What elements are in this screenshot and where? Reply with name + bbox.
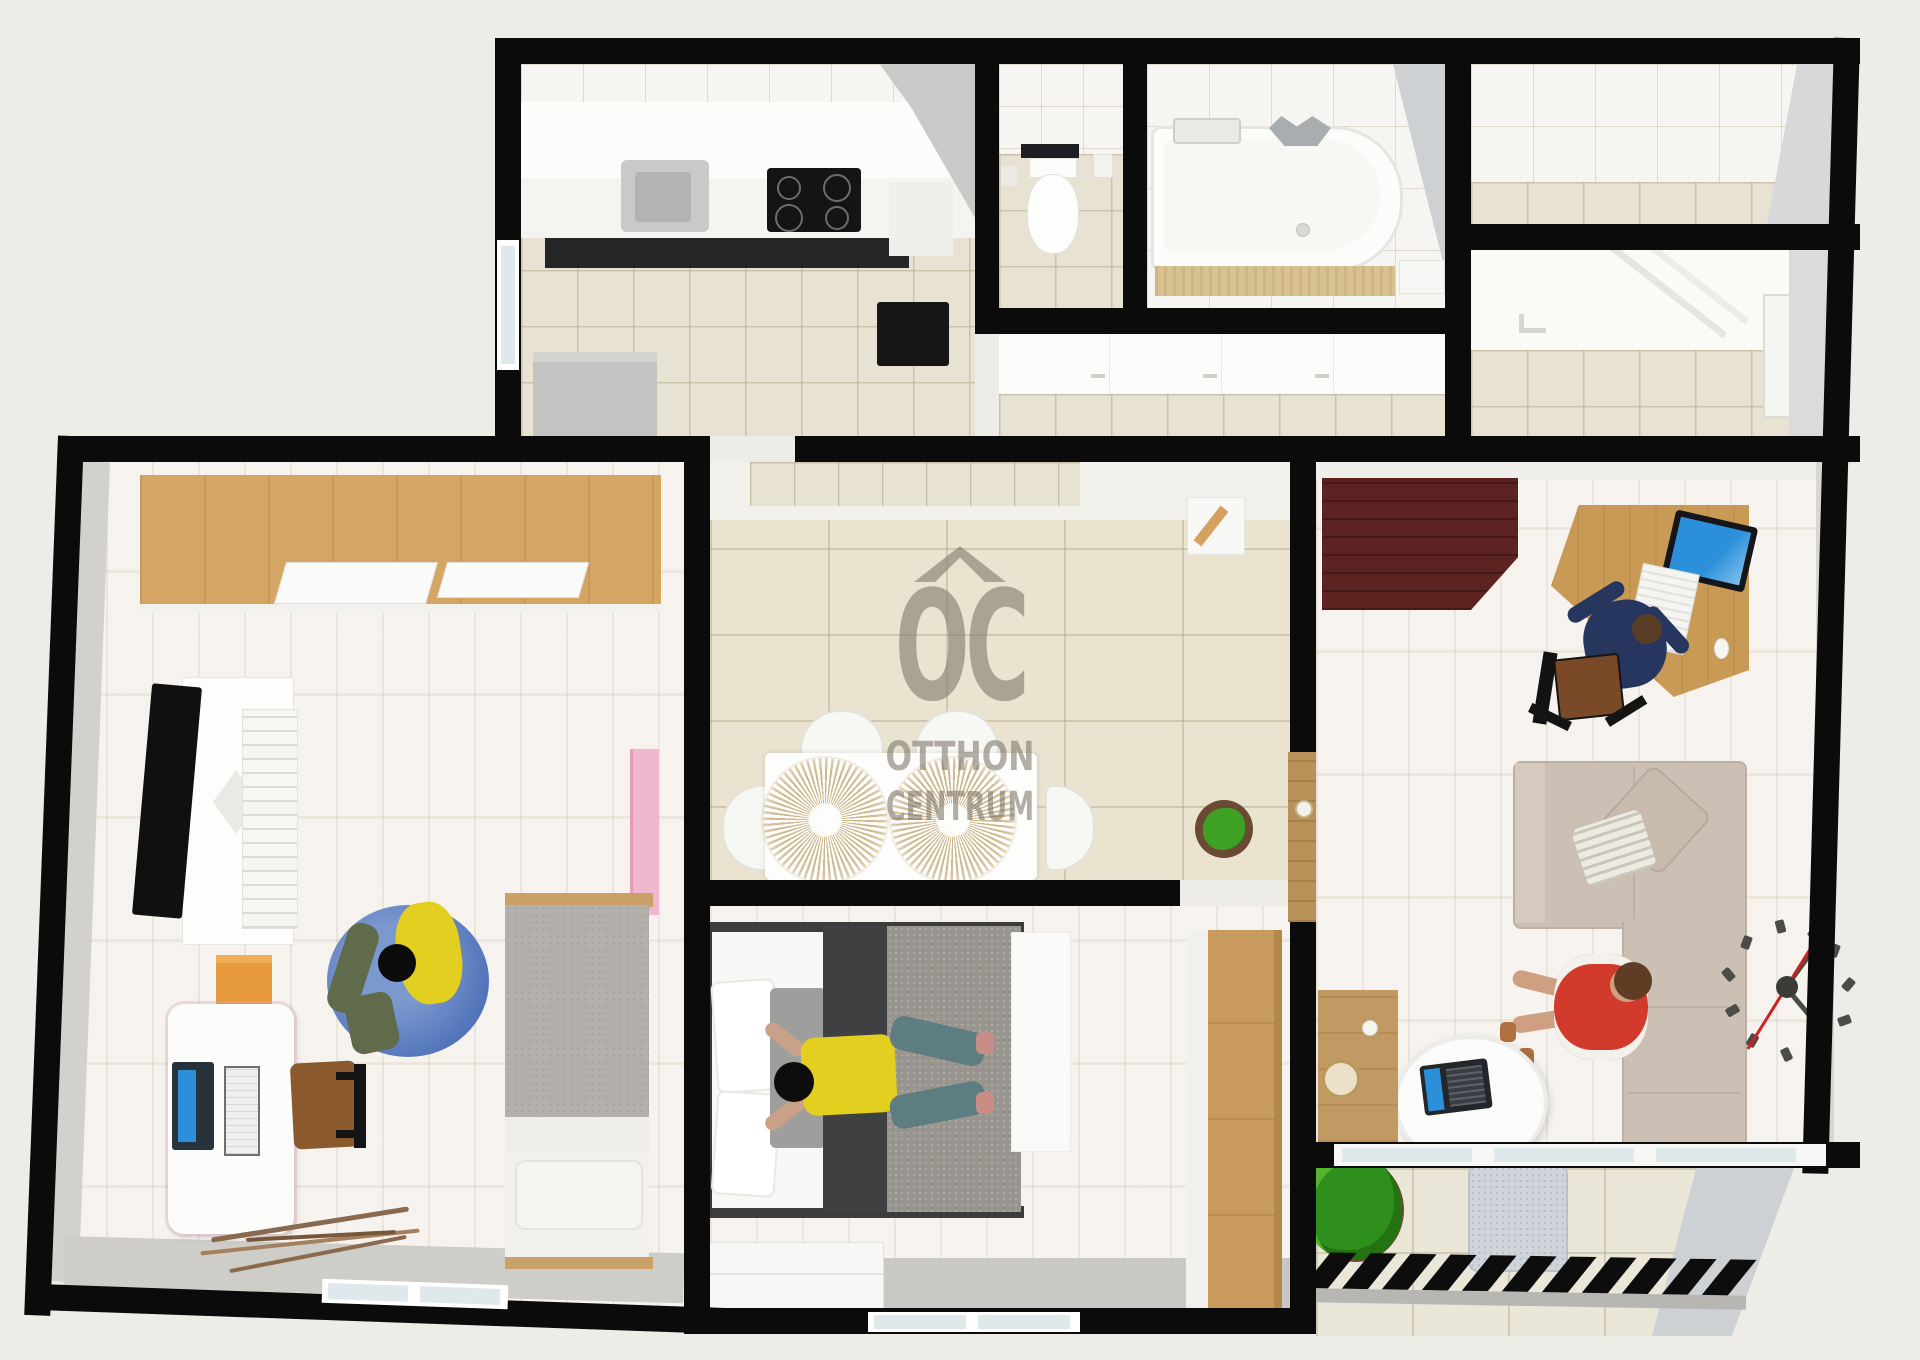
desk-chair-frame xyxy=(336,1072,362,1080)
bathtub-basin xyxy=(1164,139,1380,251)
wall-console xyxy=(1187,497,1245,555)
dark-cabinet xyxy=(1322,478,1518,610)
decor-plate xyxy=(1322,1060,1360,1098)
potted-plant xyxy=(1195,800,1253,858)
wall-top xyxy=(495,38,1860,64)
console-decor xyxy=(1194,506,1229,547)
floor-plan: OC OTTHON CENTRUM xyxy=(0,0,1920,1360)
wardrobe-seam xyxy=(1109,334,1110,394)
sofa-armrest xyxy=(1515,763,1545,923)
kitchen-window-glass xyxy=(501,246,515,364)
person-lying-head xyxy=(774,1062,814,1102)
wardrobe-handle xyxy=(1315,374,1329,378)
fridge xyxy=(533,352,657,446)
clock-mark xyxy=(1837,1014,1852,1027)
person-sofa-sandal xyxy=(1500,1022,1516,1042)
single-bed-frame xyxy=(505,1257,653,1269)
vanity-counter xyxy=(1155,266,1395,296)
clock-mark xyxy=(1721,967,1736,983)
plant-leaves xyxy=(1203,808,1245,850)
living-top-wall-face xyxy=(1316,462,1834,480)
built-in-wardrobe xyxy=(999,334,1445,394)
mouse xyxy=(1714,638,1729,659)
wardrobe-sliding-door xyxy=(437,562,589,598)
burner xyxy=(775,204,803,232)
bench-seam xyxy=(701,1273,883,1275)
person-lying-foot xyxy=(976,1032,994,1054)
oven xyxy=(877,302,949,366)
hanging-rack xyxy=(242,709,298,929)
wall-storage-bottom xyxy=(1445,224,1860,250)
entry-hall xyxy=(1471,250,1834,436)
wall-clock xyxy=(1712,910,1862,1060)
living-window-band xyxy=(1334,1144,1826,1166)
single-bed-fold xyxy=(505,1117,649,1153)
laptop-screen xyxy=(178,1070,196,1142)
door-knob xyxy=(1295,800,1313,818)
pendant-lamp xyxy=(763,758,887,882)
bath-cabinet xyxy=(1399,260,1445,294)
laptop xyxy=(172,1062,214,1150)
coat-hook-icon xyxy=(1519,314,1546,333)
laptop-on-table xyxy=(1419,1058,1493,1116)
wall-wc-bath xyxy=(1123,38,1147,334)
tall-cabinet xyxy=(889,182,953,256)
person-sofa-head xyxy=(1614,962,1652,1000)
wall-kitchen-wc xyxy=(975,38,999,334)
laptop-screen xyxy=(1424,1068,1445,1112)
wardrobe-side-panel xyxy=(1186,930,1208,1312)
dining-room xyxy=(710,462,1290,880)
toilet-bowl xyxy=(1027,174,1079,254)
wall-dining-bedroom xyxy=(710,880,1180,906)
interior-door-leaf xyxy=(1288,752,1316,922)
wardrobe-sill xyxy=(140,604,661,613)
base-cabinet-front xyxy=(545,238,909,268)
window-glass xyxy=(874,1315,966,1329)
wall-dining-living-upper xyxy=(1290,436,1316,756)
sideboard xyxy=(1318,990,1398,1142)
burner xyxy=(777,176,801,200)
wardrobe-handle xyxy=(1091,374,1105,378)
bedroom-left xyxy=(60,462,684,1308)
wall-wcbath-bottom xyxy=(999,308,1445,334)
decor-cup xyxy=(1362,1020,1378,1036)
storage-floor xyxy=(1471,182,1781,224)
desk-chair-frame xyxy=(336,1130,362,1138)
balcony xyxy=(1316,1168,1794,1336)
wc xyxy=(999,64,1123,308)
kitchen-upper-cabinets xyxy=(521,102,975,180)
bedroom-bottom xyxy=(710,906,1290,1308)
bathroom xyxy=(1147,64,1445,308)
pink-shelf xyxy=(633,749,659,915)
cooktop xyxy=(767,168,861,232)
wall-left-room-top xyxy=(60,436,710,462)
bench xyxy=(700,1242,884,1314)
hall-floor xyxy=(1471,350,1811,436)
wall-corridor-bottom xyxy=(795,436,1290,462)
storage-box xyxy=(216,955,272,1009)
kitchen xyxy=(521,64,975,436)
window-glass xyxy=(328,1283,409,1302)
wardrobe-handle xyxy=(1203,374,1217,378)
laptop-keys xyxy=(1446,1065,1486,1107)
wardrobe-sliding-door xyxy=(274,562,438,604)
toilet-paper-holder xyxy=(1093,154,1113,178)
kitchen-window xyxy=(497,240,519,370)
wall-dining-living-lower xyxy=(1290,920,1316,1334)
double-bed-blanket xyxy=(887,926,1021,1212)
pendant-lamp xyxy=(891,758,1015,882)
bathtub xyxy=(1151,126,1403,272)
wc-ceiling xyxy=(999,64,1123,154)
sofa-seam xyxy=(1628,1092,1741,1094)
clock-mark xyxy=(1774,919,1786,934)
window-glass xyxy=(978,1315,1070,1329)
window-glass xyxy=(1494,1148,1634,1162)
kitchen-sink-basin xyxy=(635,172,691,222)
clock-hub xyxy=(1776,976,1798,998)
single-bed-blanket xyxy=(505,905,649,1117)
wall-left-divider xyxy=(684,436,710,1334)
window-glass xyxy=(1656,1148,1796,1162)
drain xyxy=(1296,223,1310,237)
person-working-head xyxy=(1632,614,1662,644)
person-lying-torso xyxy=(800,1034,898,1117)
wardrobe-seam xyxy=(1221,334,1222,394)
person-lying-foot xyxy=(976,1092,994,1114)
single-bed-pillow xyxy=(515,1160,643,1230)
clock-mark xyxy=(1740,935,1753,950)
window-glass xyxy=(420,1286,501,1305)
person-sitting-head xyxy=(378,944,416,982)
clock-mark xyxy=(1725,1003,1741,1017)
corridor xyxy=(999,334,1445,436)
towel-rack xyxy=(1173,118,1241,144)
bedroom-bottom-window xyxy=(868,1312,1080,1332)
toilet-brush xyxy=(1001,166,1017,186)
desk-notepad xyxy=(224,1066,260,1156)
clock-mark xyxy=(1780,1047,1794,1063)
clock-mark xyxy=(1841,977,1856,993)
pergola-slats xyxy=(1316,1252,1757,1320)
cistern-panel xyxy=(1021,144,1079,158)
burner xyxy=(825,206,849,230)
living-room xyxy=(1316,462,1834,1142)
burner xyxy=(823,174,851,202)
window-glass xyxy=(1342,1148,1472,1162)
wardrobe-seam xyxy=(1333,334,1334,394)
corridor-floor xyxy=(999,394,1445,436)
wall-niche xyxy=(750,462,1080,506)
storage-room xyxy=(1471,64,1834,224)
bedside-dresser xyxy=(1011,932,1071,1152)
entry-door xyxy=(1763,294,1791,418)
wardrobe-tall xyxy=(1208,930,1282,1312)
wall-living-top xyxy=(1316,436,1860,462)
